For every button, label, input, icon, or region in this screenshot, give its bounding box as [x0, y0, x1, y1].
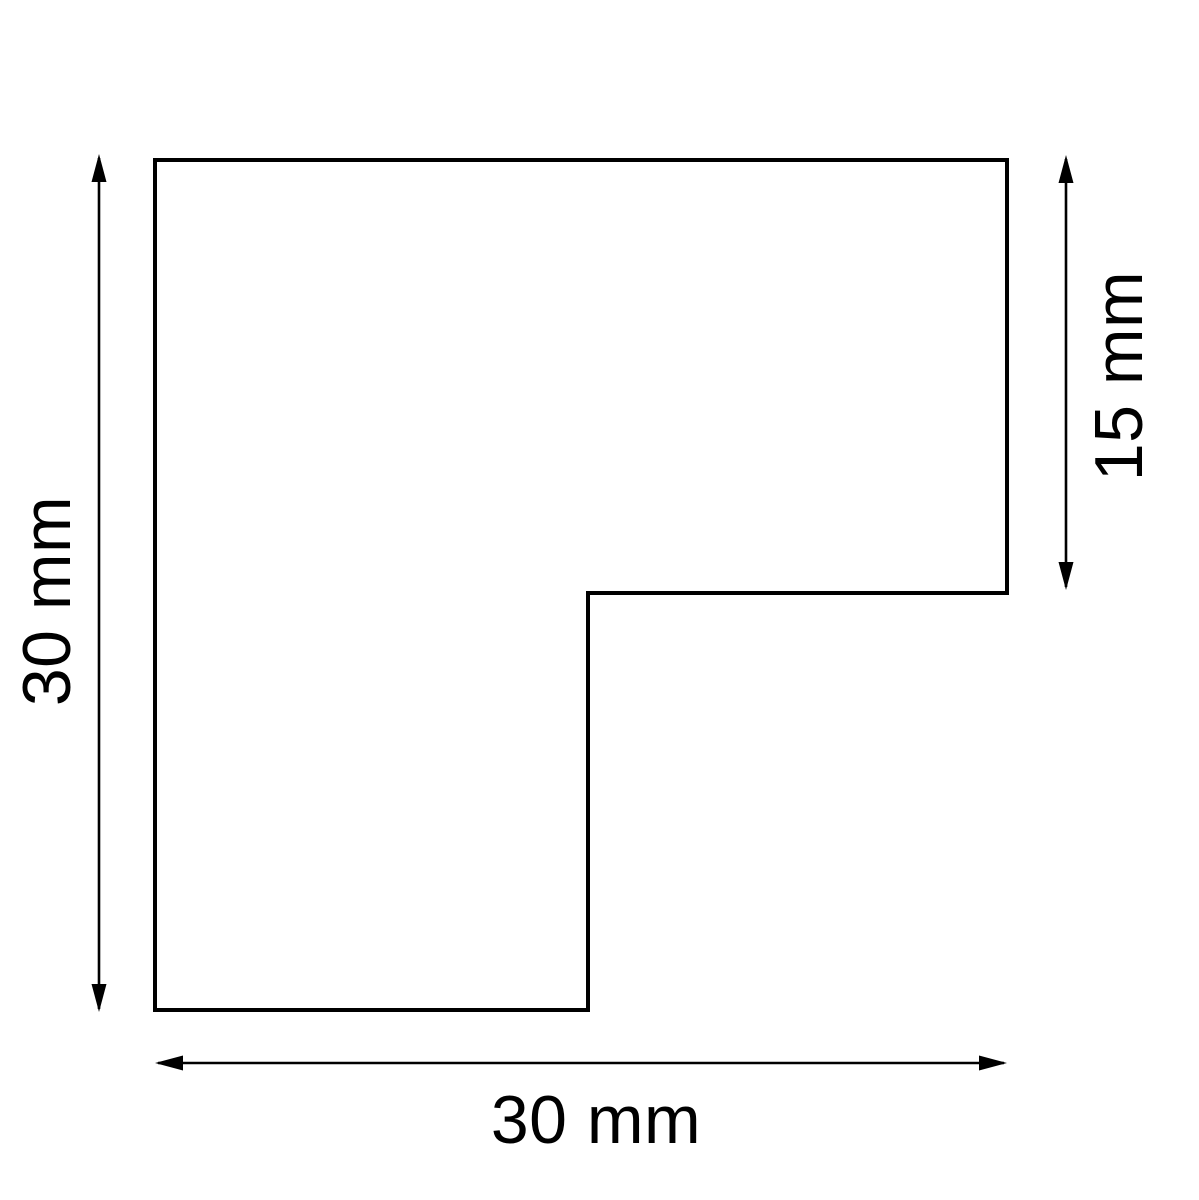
arrowhead-up-icon: [1059, 155, 1074, 183]
arrowhead-right-icon: [979, 1056, 1007, 1071]
dimension-label-bottom-width: 30 mm: [491, 1082, 701, 1158]
arrowhead-down-icon: [1059, 562, 1074, 590]
arrowhead-down-icon: [92, 984, 107, 1012]
arrowhead-up-icon: [92, 154, 107, 182]
part-outline-shape: [155, 160, 1007, 1010]
drawing-canvas: 30 mm 15 mm 30 mm: [0, 0, 1199, 1200]
dimension-left-height: 30 mm: [9, 154, 107, 1012]
dimension-label-right-height: 15 mm: [1081, 271, 1157, 481]
dimension-label-left-height: 30 mm: [9, 496, 85, 706]
dimension-bottom-width: 30 mm: [155, 1056, 1007, 1159]
arrowhead-left-icon: [155, 1056, 183, 1071]
dimension-right-height: 15 mm: [1059, 155, 1158, 590]
technical-drawing: 30 mm 15 mm 30 mm: [0, 0, 1199, 1200]
